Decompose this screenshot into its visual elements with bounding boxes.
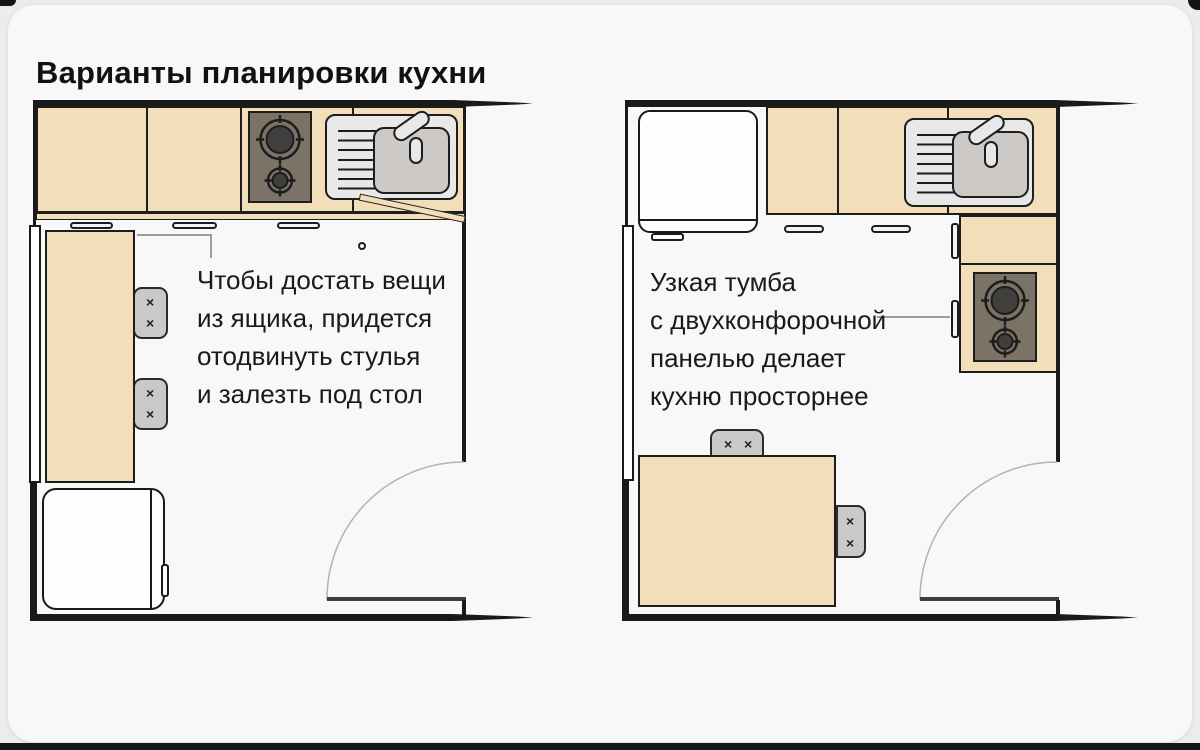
wall-left-lower [622, 479, 629, 621]
chair-screw-mark: × [846, 516, 854, 526]
chair-screw-mark: × [146, 318, 154, 328]
stove [973, 272, 1037, 362]
fridge-door-line [640, 219, 756, 221]
cabinet-handle-side [951, 223, 959, 259]
door-swing-arc [313, 447, 478, 612]
cabinet-handle [784, 225, 824, 233]
neighbor-card-corner-left [0, 0, 16, 6]
page-title: Варианты планировки кухни [36, 55, 487, 91]
window [29, 225, 41, 483]
fridge [638, 110, 758, 233]
door-swing-arc [906, 447, 1071, 612]
window [622, 225, 634, 481]
annotation-line: кухню просторнее [650, 377, 886, 415]
chair-screw-mark: × [146, 409, 154, 419]
floor-plan-right: × × × × Узкая тумба с двухконфорочной па… [622, 97, 1144, 627]
leader-line [137, 234, 212, 236]
cabinet-handle [70, 222, 113, 229]
wall-door-stub [462, 600, 466, 616]
annotation-text: Узкая тумба с двухконфорочной панелью де… [650, 263, 886, 415]
wall-bottom [30, 614, 533, 621]
annotation-line: с двухконфорочной [650, 301, 886, 339]
wall-left-lower [30, 481, 37, 621]
cabinet-handle [871, 225, 911, 233]
next-card-top-bar [0, 743, 1200, 750]
cabinet-handle-side [951, 300, 959, 338]
chair-screw-mark: × [846, 538, 854, 548]
floor-plan-left: × × × × Чтобы достать вещи из ящика, при… [33, 97, 545, 627]
sink [325, 114, 458, 200]
annotation-line: панелью делает [650, 339, 886, 377]
cabinet-divider [146, 106, 148, 213]
dining-table [638, 455, 836, 607]
faucet-spout [984, 141, 998, 168]
leader-line [877, 316, 950, 318]
countertop-edge [36, 213, 465, 220]
annotation-line: и залезть под стол [197, 375, 446, 413]
cabinet-divider [837, 106, 839, 215]
burner-icons [250, 113, 310, 201]
annotation-line: Узкая тумба [650, 263, 886, 301]
sink-drainboard [338, 130, 376, 190]
chair-screw-mark: × [744, 439, 752, 449]
wall-bottom [622, 614, 1138, 621]
chair-screw-mark: × [146, 297, 154, 307]
leader-line [210, 234, 212, 258]
burner-icons [975, 274, 1035, 362]
sink [904, 118, 1034, 207]
door-leaf [920, 597, 1059, 601]
cabinet-handle [172, 222, 217, 229]
fridge-handle [161, 564, 169, 597]
faucet-spout [409, 137, 423, 164]
neighbor-card-corner-right [1188, 0, 1200, 10]
annotation-line: отодвинуть стулья [197, 337, 446, 375]
chair-screw-mark: × [146, 388, 154, 398]
fridge [42, 488, 165, 610]
stove [248, 111, 312, 203]
cabinet-divider [959, 263, 1058, 265]
door-leaf [327, 597, 466, 601]
dining-table [45, 230, 135, 483]
wall-door-stub [1056, 600, 1060, 616]
annotation-text: Чтобы достать вещи из ящика, придется от… [197, 261, 446, 413]
door-knob [358, 242, 366, 250]
sink-drainboard [917, 134, 955, 194]
chair: × × [836, 505, 866, 558]
chair: × × [133, 287, 168, 339]
wall-left-upper [625, 103, 628, 227]
fridge-handle [651, 233, 684, 241]
chair-screw-mark: × [724, 439, 732, 449]
fridge-door-line [150, 490, 152, 608]
chair: × × [133, 378, 168, 430]
cabinet-divider [240, 106, 242, 213]
annotation-line: Чтобы достать вещи [197, 261, 446, 299]
annotation-line: из ящика, придется [197, 299, 446, 337]
cabinet-handle [277, 222, 320, 229]
